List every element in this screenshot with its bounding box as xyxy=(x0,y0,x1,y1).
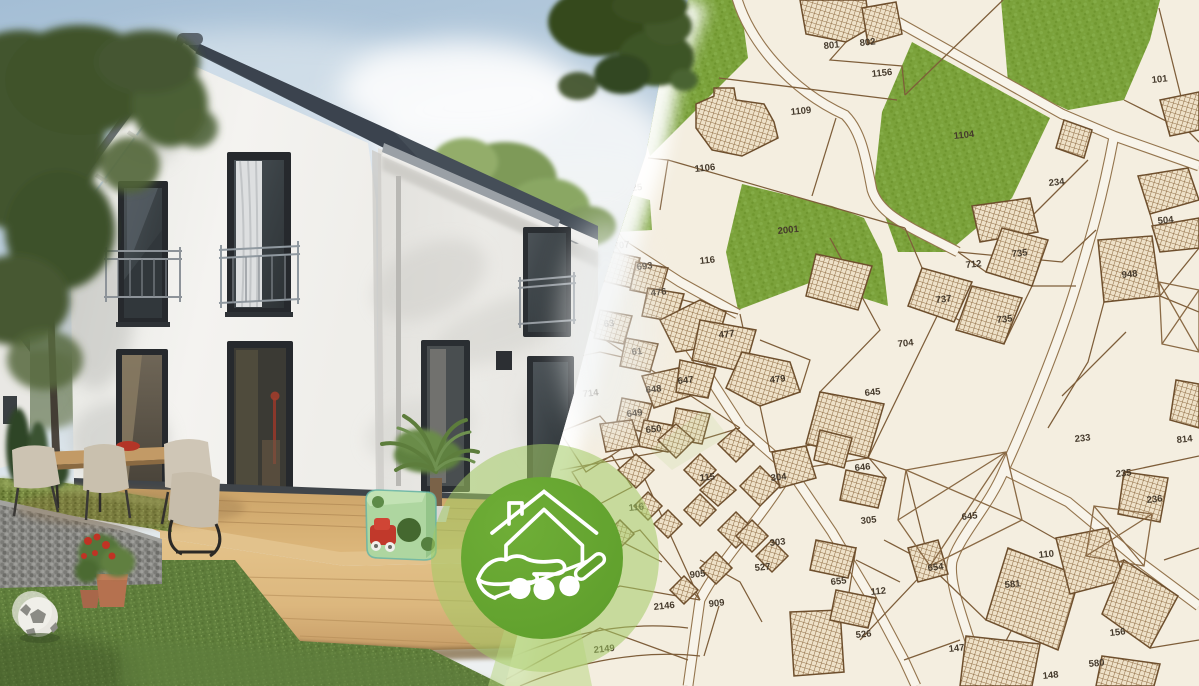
svg-text:479: 479 xyxy=(769,373,786,386)
svg-text:650: 650 xyxy=(645,423,662,436)
svg-text:814: 814 xyxy=(1176,433,1194,446)
svg-text:233: 233 xyxy=(1074,432,1091,445)
svg-text:147: 147 xyxy=(948,642,965,655)
svg-text:112: 112 xyxy=(870,585,886,598)
svg-text:526: 526 xyxy=(855,628,872,641)
svg-text:110: 110 xyxy=(1038,548,1054,561)
svg-text:801: 801 xyxy=(823,39,841,52)
svg-text:581: 581 xyxy=(1004,578,1022,591)
svg-text:236: 236 xyxy=(1146,493,1163,506)
svg-text:735: 735 xyxy=(1011,247,1029,260)
svg-text:116: 116 xyxy=(699,254,715,267)
svg-text:648: 648 xyxy=(645,383,662,396)
svg-text:115: 115 xyxy=(699,471,716,484)
svg-text:1109: 1109 xyxy=(790,105,812,118)
svg-text:477: 477 xyxy=(718,328,735,341)
svg-text:1104: 1104 xyxy=(953,129,975,142)
svg-text:1156: 1156 xyxy=(871,67,893,80)
svg-text:101: 101 xyxy=(1151,73,1169,86)
svg-text:646: 646 xyxy=(854,461,871,474)
svg-text:305: 305 xyxy=(860,514,878,527)
svg-text:504: 504 xyxy=(1157,214,1175,227)
svg-text:527: 527 xyxy=(754,561,771,574)
svg-text:304: 304 xyxy=(770,471,788,484)
svg-text:580: 580 xyxy=(1088,657,1105,670)
svg-text:148: 148 xyxy=(1042,669,1059,682)
svg-text:948: 948 xyxy=(1121,268,1138,281)
svg-text:303: 303 xyxy=(769,536,786,549)
svg-text:476: 476 xyxy=(650,286,667,299)
svg-text:735: 735 xyxy=(996,313,1014,326)
svg-text:2001: 2001 xyxy=(777,224,800,237)
svg-text:2146: 2146 xyxy=(653,600,675,613)
svg-text:645: 645 xyxy=(961,510,979,523)
svg-text:737: 737 xyxy=(935,293,952,306)
svg-text:234: 234 xyxy=(1048,176,1066,189)
svg-text:712: 712 xyxy=(965,258,982,271)
svg-text:235: 235 xyxy=(1115,467,1133,480)
svg-text:156: 156 xyxy=(1109,626,1126,639)
svg-text:909: 909 xyxy=(708,597,725,610)
svg-text:802: 802 xyxy=(859,36,876,49)
svg-text:647: 647 xyxy=(677,374,694,387)
svg-text:645: 645 xyxy=(864,386,882,399)
svg-text:905: 905 xyxy=(689,568,707,581)
svg-text:655: 655 xyxy=(830,575,848,588)
svg-text:704: 704 xyxy=(897,337,915,350)
svg-text:654: 654 xyxy=(927,561,945,574)
svg-text:1106: 1106 xyxy=(694,162,716,175)
